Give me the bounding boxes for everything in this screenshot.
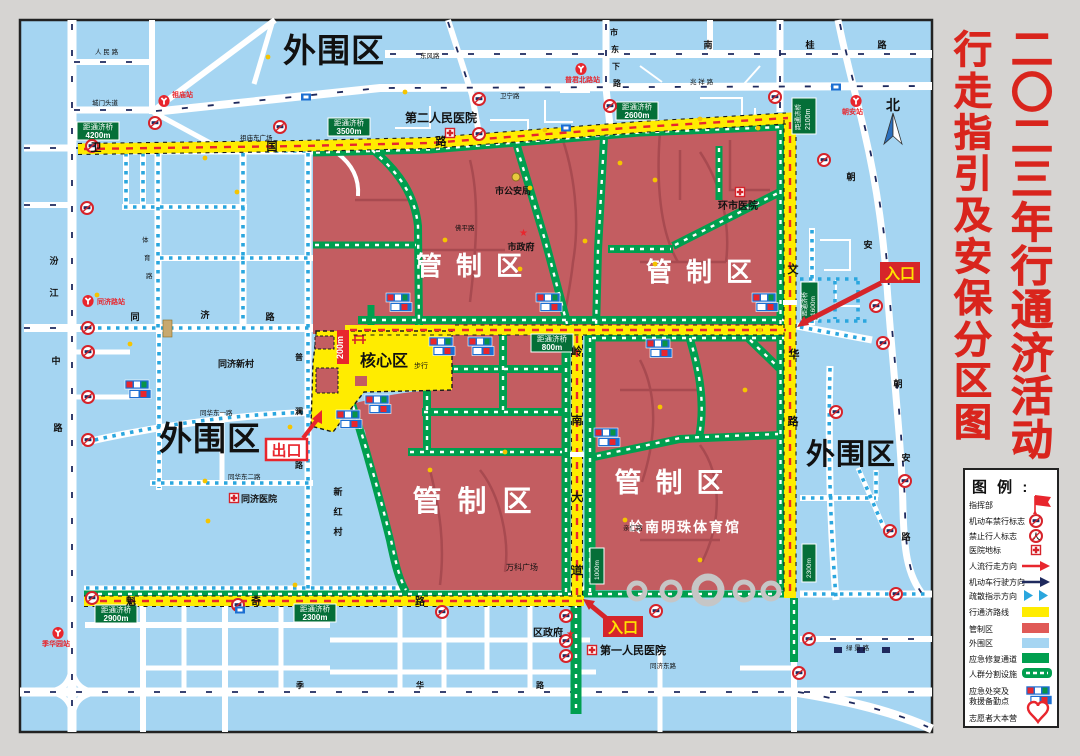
svg-text:步行: 步行 <box>414 361 428 370</box>
svg-text:东风路: 东风路 <box>420 51 440 60</box>
svg-text:1600m: 1600m <box>810 296 817 316</box>
svg-text:体: 体 <box>142 235 149 244</box>
svg-text:路: 路 <box>436 134 448 148</box>
svg-text:第一人民医院: 第一人民医院 <box>600 643 666 657</box>
svg-text:人流行走方向: 人流行走方向 <box>969 561 1017 571</box>
svg-text:机动车行驶方向: 机动车行驶方向 <box>969 577 1025 587</box>
svg-text:汾: 汾 <box>49 255 58 266</box>
svg-text:普: 普 <box>295 352 303 362</box>
svg-text:人 民 路: 人 民 路 <box>95 47 119 56</box>
svg-text:澜: 澜 <box>295 406 303 416</box>
svg-text:城门头道: 城门头道 <box>92 98 119 107</box>
svg-text:入口: 入口 <box>885 266 915 283</box>
svg-text:出口: 出口 <box>271 442 301 460</box>
svg-text:行走指引及安保分区图: 行走指引及安保分区图 <box>954 30 993 445</box>
svg-text:育: 育 <box>144 253 151 262</box>
svg-text:4200m: 4200m <box>86 131 111 140</box>
svg-text:2600m: 2600m <box>625 111 650 120</box>
svg-text:济: 济 <box>200 309 210 320</box>
svg-text:志愿者大本营: 志愿者大本营 <box>969 713 1017 723</box>
svg-text:市: 市 <box>610 27 618 37</box>
svg-text:禁止行人标志: 禁止行人标志 <box>969 531 1017 541</box>
svg-text:第二人民医院: 第二人民医院 <box>405 110 477 125</box>
svg-text:环市医院: 环市医院 <box>718 199 758 212</box>
svg-text:朝: 朝 <box>846 171 855 182</box>
svg-text:同: 同 <box>130 312 139 322</box>
svg-text:3500m: 3500m <box>337 127 362 136</box>
svg-text:★: ★ <box>519 228 528 239</box>
svg-text:外围区: 外围区 <box>283 32 385 69</box>
svg-text:岭: 岭 <box>572 344 583 358</box>
svg-text:卫宁路: 卫宁路 <box>500 91 520 100</box>
svg-text:文: 文 <box>788 262 800 276</box>
svg-text:图 例 :: 图 例 : <box>972 478 1030 496</box>
svg-text:管制区: 管制区 <box>615 468 738 498</box>
svg-text:外围区: 外围区 <box>159 420 261 457</box>
svg-text:入口: 入口 <box>608 620 638 637</box>
svg-text:安: 安 <box>901 452 910 463</box>
svg-text:魁: 魁 <box>126 595 136 608</box>
svg-text:奇: 奇 <box>251 595 261 608</box>
svg-text:2100m: 2100m <box>805 108 812 130</box>
svg-text:路: 路 <box>901 531 911 542</box>
svg-text:距通济桥: 距通济桥 <box>793 104 802 131</box>
svg-text:安: 安 <box>863 239 872 250</box>
svg-text:人群分割设施: 人群分割设施 <box>969 669 1017 679</box>
svg-text:医院地标: 医院地标 <box>969 545 1001 555</box>
svg-text:管制区: 管制区 <box>412 484 547 518</box>
svg-text:中: 中 <box>51 355 60 366</box>
svg-text:卫: 卫 <box>91 141 102 154</box>
svg-text:季: 季 <box>295 680 305 690</box>
svg-text:外围区: 外围区 <box>806 438 896 471</box>
svg-text:祖庙东广场: 祖庙东广场 <box>240 133 273 142</box>
svg-text:2300m: 2300m <box>303 613 328 622</box>
svg-text:道: 道 <box>572 563 583 577</box>
svg-text:万科广场: 万科广场 <box>506 562 538 572</box>
svg-text:朝安站: 朝安站 <box>842 107 863 116</box>
svg-text:北: 北 <box>886 97 900 113</box>
svg-text:同华东一路: 同华东一路 <box>200 408 233 417</box>
svg-text:同济路站: 同济路站 <box>97 297 125 306</box>
svg-text:救援备勤点: 救援备勤点 <box>969 696 1009 706</box>
svg-text:下: 下 <box>612 62 620 71</box>
svg-text:路: 路 <box>788 414 800 428</box>
svg-text:指挥部: 指挥部 <box>969 500 993 510</box>
svg-text:800m: 800m <box>542 343 562 352</box>
svg-text:亲仁路: 亲仁路 <box>623 523 643 532</box>
svg-text:桂: 桂 <box>804 39 814 50</box>
svg-text:南: 南 <box>572 413 583 427</box>
svg-text:同华东二路: 同华东二路 <box>228 472 261 481</box>
svg-text:兆 祥 路: 兆 祥 路 <box>690 77 714 86</box>
svg-text:核心区: 核心区 <box>360 351 408 370</box>
svg-text:同济东路: 同济东路 <box>650 661 677 670</box>
svg-text:华: 华 <box>789 347 800 361</box>
svg-text:200m: 200m <box>335 336 345 359</box>
svg-text:应急处突及: 应急处突及 <box>969 686 1009 696</box>
svg-text:季华园站: 季华园站 <box>41 639 70 648</box>
svg-text:2900m: 2900m <box>104 614 129 623</box>
svg-text:管制区: 管制区 <box>416 251 536 281</box>
svg-text:祖庙站: 祖庙站 <box>171 90 193 99</box>
svg-text:朝: 朝 <box>893 378 902 389</box>
svg-text:华: 华 <box>416 680 424 690</box>
svg-text:南: 南 <box>703 39 712 50</box>
svg-text:2300m: 2300m <box>806 558 813 578</box>
svg-text:普君北路站: 普君北路站 <box>565 75 600 84</box>
svg-text:同济医院: 同济医院 <box>241 493 277 504</box>
svg-text:绿 景 路: 绿 景 路 <box>846 643 870 652</box>
svg-text:路: 路 <box>53 422 63 433</box>
svg-text:路: 路 <box>265 311 275 322</box>
svg-text:路: 路 <box>415 595 426 608</box>
svg-text:江: 江 <box>49 287 58 298</box>
svg-text:村: 村 <box>333 526 342 537</box>
svg-text:管制区: 管制区 <box>646 257 766 287</box>
svg-text:路: 路 <box>146 271 153 280</box>
svg-text:区政府: 区政府 <box>533 626 563 639</box>
svg-text:距通济桥: 距通济桥 <box>801 292 809 316</box>
svg-text:二〇二三年行通济活动: 二〇二三年行通济活动 <box>1011 26 1054 464</box>
svg-text:东: 东 <box>611 44 619 54</box>
svg-text:市公安局: 市公安局 <box>495 185 531 196</box>
svg-text:佛平路: 佛平路 <box>455 223 475 232</box>
svg-text:红: 红 <box>333 506 342 517</box>
svg-text:路: 路 <box>536 680 545 690</box>
svg-text:机动车禁行标志: 机动车禁行标志 <box>969 516 1025 526</box>
svg-text:管制区: 管制区 <box>969 624 993 634</box>
svg-text:应急修复通道: 应急修复通道 <box>969 654 1017 664</box>
svg-text:同济新村: 同济新村 <box>218 358 254 369</box>
svg-text:路: 路 <box>295 460 304 470</box>
svg-text:外围区: 外围区 <box>969 638 993 648</box>
svg-text:路: 路 <box>877 39 887 50</box>
svg-text:路: 路 <box>613 78 622 88</box>
svg-text:大: 大 <box>572 490 583 504</box>
svg-text:行通济路线: 行通济路线 <box>969 607 1009 617</box>
svg-text:★: ★ <box>566 629 575 640</box>
svg-text:岭南明珠体育馆: 岭南明珠体育馆 <box>629 519 741 535</box>
svg-text:1000m: 1000m <box>594 560 601 580</box>
svg-text:新: 新 <box>333 486 342 497</box>
svg-text:疏散指示方向: 疏散指示方向 <box>969 591 1017 601</box>
